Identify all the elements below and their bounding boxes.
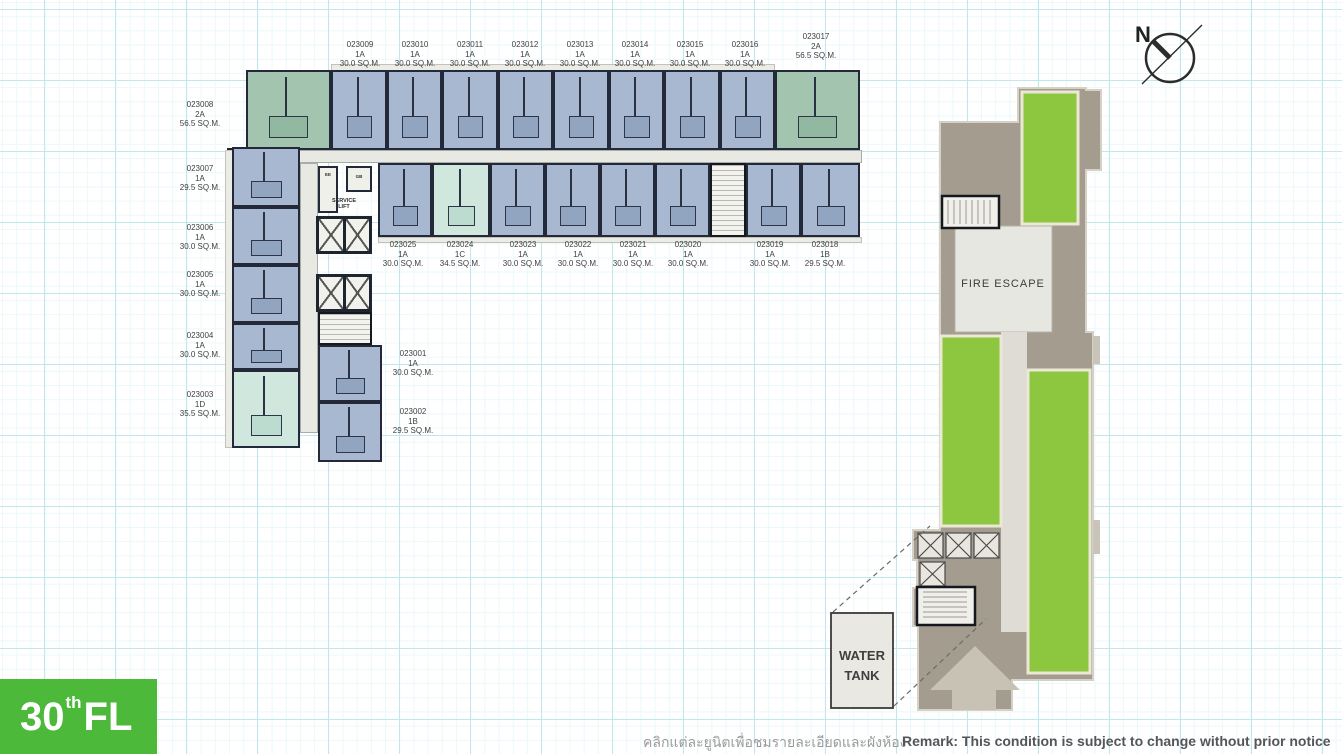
tower-right-tab <box>1093 336 1100 364</box>
unit-label-023003: 0230031D35.5 SQ.M. <box>168 390 232 419</box>
tower-corridor <box>1001 332 1027 632</box>
compass-north-bar <box>1153 41 1170 58</box>
unit-023003[interactable] <box>232 370 300 448</box>
unit-label-023019: 0230191A30.0 SQ.M. <box>741 240 799 269</box>
unit-label-023009: 0230091A30.0 SQ.M. <box>331 40 389 69</box>
garden-bed <box>1022 92 1078 224</box>
compass: N <box>1125 16 1220 101</box>
unit-label-023006: 0230061A30.0 SQ.M. <box>168 223 232 252</box>
lift-shaft-icon <box>319 219 343 251</box>
unit-label-023017: 0230172A56.5 SQ.M. <box>787 32 845 61</box>
unit-label-023023: 0230231A30.0 SQ.M. <box>494 240 552 269</box>
unit-023004[interactable] <box>232 323 300 370</box>
unit-023005[interactable] <box>232 265 300 323</box>
unit-label-023024: 0230241C34.5 SQ.M. <box>431 240 489 269</box>
lift-shaft-icon <box>319 277 343 309</box>
unit-label-023007: 0230071A29.5 SQ.M. <box>168 164 232 193</box>
tower-stair-lower <box>917 587 975 625</box>
unit-label-023014: 0230141A30.0 SQ.M. <box>606 40 664 69</box>
tower-stair-upper <box>942 196 999 228</box>
unit-023015[interactable] <box>664 70 720 150</box>
floor-number: 30 <box>20 697 65 737</box>
unit-023021[interactable] <box>600 163 655 237</box>
unit-label-023004: 0230041A30.0 SQ.M. <box>168 331 232 360</box>
unit-label-023021: 0230211A30.0 SQ.M. <box>604 240 662 269</box>
unit-label-023022: 0230221A30.0 SQ.M. <box>549 240 607 269</box>
remark-note: Remark: This condition is subject to cha… <box>902 733 1331 749</box>
floor-label: FL <box>84 697 133 737</box>
unit-label-023001: 0230011A30.0 SQ.M. <box>384 349 442 378</box>
unit-023023[interactable] <box>490 163 545 237</box>
unit-023001[interactable] <box>318 345 382 402</box>
unit-023010[interactable] <box>387 70 442 150</box>
unit-023011[interactable] <box>442 70 498 150</box>
water-tank-label-line1: WATER <box>839 648 886 663</box>
unit-label-023012: 0230121A30.0 SQ.M. <box>496 40 554 69</box>
unit-label-023025: 0230251A30.0 SQ.M. <box>374 240 432 269</box>
compass-north-label: N <box>1135 22 1151 47</box>
unit-label-023020: 0230201A30.0 SQ.M. <box>659 240 717 269</box>
unit-023012[interactable] <box>498 70 553 150</box>
corridor-horizontal <box>242 150 862 163</box>
unit-label-023013: 0230131A30.0 SQ.M. <box>551 40 609 69</box>
lift-shaft-icon <box>346 219 370 251</box>
lift-shaft-icon <box>346 277 370 309</box>
lift-bank-2 <box>316 274 372 312</box>
water-tank-label-line2: TANK <box>844 668 880 683</box>
service-lift-label: SERVICE LIFT <box>316 198 372 211</box>
unit-label-023011: 0230111A30.0 SQ.M. <box>441 40 499 69</box>
unit-023019[interactable] <box>746 163 801 237</box>
unit-023014[interactable] <box>609 70 664 150</box>
stairwell-core <box>318 312 372 345</box>
lift-bank-1 <box>316 216 372 254</box>
gb-room-label: GB <box>346 174 372 179</box>
thai-instruction-note: คลิกแต่ละยูนิตเพื่อชมรายละเอียดและผังห้อ… <box>643 732 906 754</box>
garden-bed <box>941 336 1001 526</box>
unit-023024[interactable] <box>432 163 490 237</box>
unit-023022[interactable] <box>545 163 600 237</box>
unit-label-023005: 0230051A30.0 SQ.M. <box>168 270 232 299</box>
fire-escape-label: FIRE ESCAPE <box>961 278 1045 290</box>
ee-room-label: EE <box>318 172 338 177</box>
unit-label-023008: 0230082A56.5 SQ.M. <box>168 100 232 129</box>
unit-023007[interactable] <box>232 147 300 207</box>
unit-023009[interactable] <box>331 70 387 150</box>
floor-plan-page: EE GB SERVICE LIFT 0230091A30.0 SQ.M. 02… <box>0 0 1342 754</box>
tower-right-tab <box>1093 520 1100 554</box>
unit-023013[interactable] <box>553 70 609 150</box>
unit-label-023002: 0230021B29.5 SQ.M. <box>384 407 442 436</box>
unit-label-023015: 0230151A30.0 SQ.M. <box>661 40 719 69</box>
unit-023016[interactable] <box>720 70 775 150</box>
unit-label-023016: 0230161A30.0 SQ.M. <box>716 40 774 69</box>
unit-023020[interactable] <box>655 163 710 237</box>
floor-suffix: th <box>66 694 82 711</box>
unit-023008[interactable] <box>246 70 331 150</box>
floor-badge: 30thFL <box>0 679 157 754</box>
unit-023025[interactable] <box>378 163 432 237</box>
garden-bed <box>1028 370 1090 673</box>
stairwell-east <box>710 163 746 237</box>
unit-label-023010: 0230101A30.0 SQ.M. <box>386 40 444 69</box>
service-tower: FIRE ESCAPE WATER TANK <box>820 80 1120 740</box>
unit-023006[interactable] <box>232 207 300 265</box>
unit-023002[interactable] <box>318 402 382 462</box>
